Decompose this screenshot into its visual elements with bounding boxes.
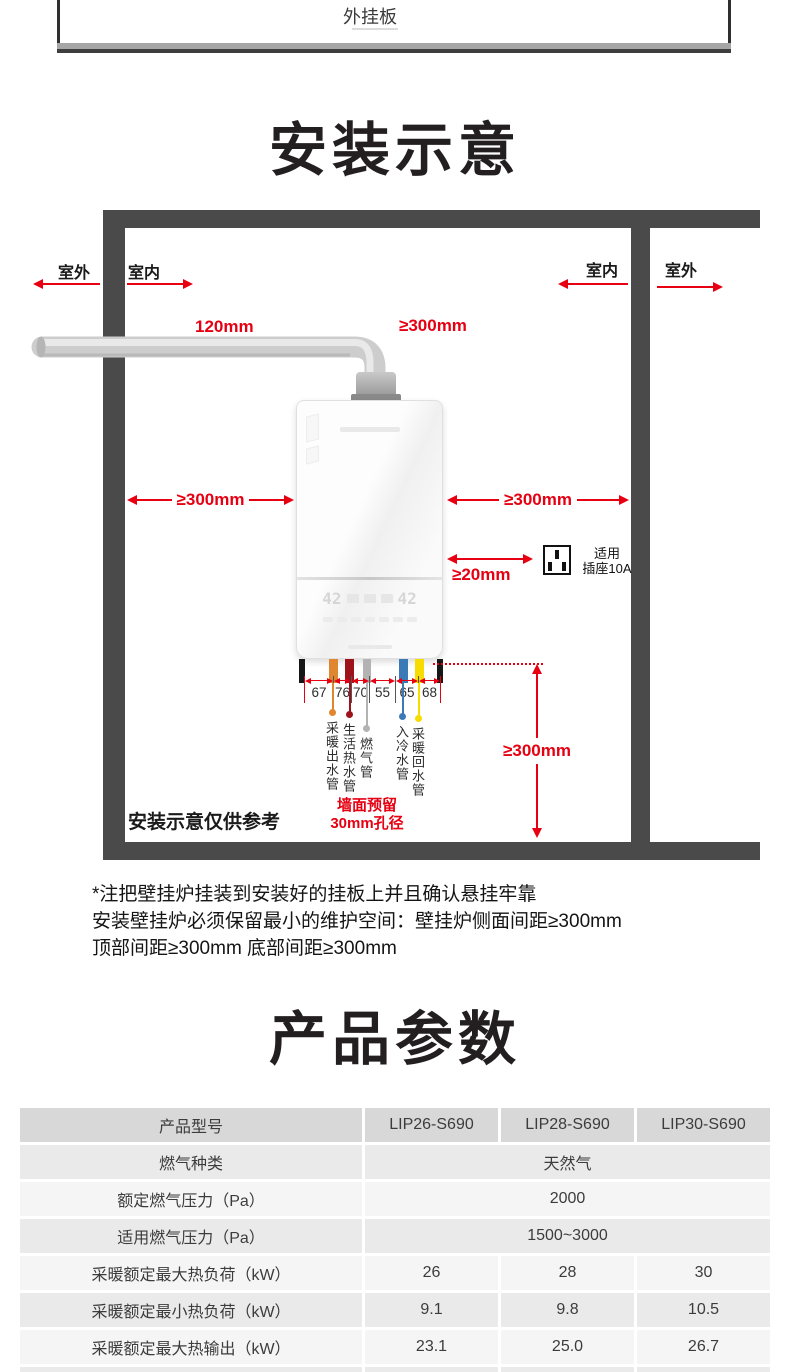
dim-left-clearance: ≥300mm	[172, 490, 250, 510]
wall-hole-note: 墙面预留 30mm孔径	[321, 797, 413, 833]
table-cell: 天然气	[365, 1145, 770, 1179]
dim-right-clearance-arrow: ≥300mm	[447, 494, 629, 506]
table-header-cell: LIP30-S690	[637, 1108, 770, 1142]
table-row-label: 采暖额定最大热负荷（kW）	[20, 1256, 362, 1290]
boiler-display-segment	[381, 594, 393, 603]
pipe-name-heating-out: 采暖出水管	[324, 721, 338, 791]
table-cell: 2000	[365, 1182, 770, 1216]
boiler-bottom-logo	[348, 645, 392, 649]
table-cutoff-row	[365, 1367, 498, 1372]
table-cell: 9.1	[365, 1293, 498, 1327]
power-socket-icon	[543, 545, 571, 575]
install-section-title: 安装示意	[0, 103, 790, 187]
table-row-label: 采暖额定最小热负荷（kW）	[20, 1293, 362, 1327]
params-table: 产品型号 LIP26-S690 LIP28-S690 LIP30-S690 燃气…	[20, 1108, 770, 1372]
table-cell: 9.8	[501, 1293, 634, 1327]
table-header-cell: LIP26-S690	[365, 1108, 498, 1142]
table-cell: 26	[365, 1256, 498, 1290]
table-cell: 1500~3000	[365, 1219, 770, 1253]
wall-floor	[103, 842, 760, 860]
table-cell: 10.5	[637, 1293, 770, 1327]
boiler-display-segment	[347, 594, 359, 603]
socket-label: 适用 插座10A	[577, 546, 637, 576]
arrow-indoor-right	[558, 278, 628, 290]
flue-pipe	[28, 330, 388, 410]
wall-right	[631, 210, 650, 860]
table-row-label: 采暖额定最大热输出（kW）	[20, 1330, 362, 1364]
boiler-brand-logo	[340, 427, 400, 432]
table-cell: 30	[637, 1256, 770, 1290]
boiler-display-segment	[364, 594, 376, 603]
pipe-name-gas: 燃气管	[358, 737, 372, 779]
params-section-title: 产品参数	[0, 992, 790, 1076]
table-cell: 28	[501, 1256, 634, 1290]
mount-plate-label: 外挂板	[300, 3, 440, 29]
pipe-name-cold-in: 入冷水管	[394, 725, 408, 781]
arrow-indoor-left	[127, 278, 193, 290]
table-row-label: 额定燃气压力（Pa）	[20, 1182, 362, 1216]
install-note-line: 顶部间距≥300mm 底部间距≥300mm	[92, 935, 752, 962]
extension-dotted-line	[433, 663, 543, 665]
dim-right-clearance: ≥300mm	[499, 490, 577, 510]
table-header-cell: 产品型号	[20, 1108, 362, 1142]
table-cell: 25.0	[501, 1330, 634, 1364]
dim-top-clearance: ≥300mm	[399, 316, 467, 336]
boiler-reflection	[306, 445, 319, 464]
dim-socket-clearance-arrow	[447, 553, 533, 565]
table-cutoff-row	[20, 1367, 362, 1372]
wall-left	[103, 210, 125, 860]
pipe-spacing-strip: 67 76 70 55 65 68	[304, 676, 441, 703]
product-detail-page: 外挂板 安装示意 室外 室内 室内 室外 120mm ≥300mm 42	[0, 0, 790, 1372]
table-row-label: 燃气种类	[20, 1145, 362, 1179]
boiler-unit: 42 42	[296, 400, 443, 659]
wall-ceiling	[103, 210, 760, 228]
arrow-outdoor-right	[657, 281, 723, 293]
mount-plate-edge-dark	[57, 49, 731, 53]
diagram-reference-note: 安装示意仅供参考	[128, 807, 280, 834]
label-outdoor-right: 室外	[665, 257, 697, 281]
dim-socket-clearance: ≥20mm	[452, 565, 510, 585]
boiler-display-right-value: 42	[398, 589, 417, 608]
table-cell: 23.1	[365, 1330, 498, 1364]
boiler-buttons-row	[297, 617, 442, 622]
install-notes: *注把壁挂炉挂装到安装好的挂板上并且确认悬挂牢靠 安装壁挂炉必须保留最小的维护空…	[92, 881, 752, 962]
pipe-name-heating-return: 采暖回水管	[410, 727, 424, 797]
install-note-line: *注把壁挂炉挂装到安装好的挂板上并且确认悬挂牢靠	[92, 881, 752, 908]
boiler-display-left-value: 42	[322, 589, 341, 608]
boiler-display: 42 42	[297, 589, 442, 608]
dim-bottom-clearance: ≥300mm	[501, 738, 573, 764]
dim-bottom-clearance-arrow: ≥300mm	[530, 664, 544, 838]
install-note-line: 安装壁挂炉必须保留最小的维护空间：壁挂炉侧面间距≥300mm	[92, 908, 752, 935]
pipe-name-hot-water: 生活热水管	[341, 723, 355, 793]
mount-plate-pointer-line	[352, 28, 398, 30]
table-cutoff-row	[637, 1367, 770, 1372]
table-header-cell: LIP28-S690	[501, 1108, 634, 1142]
boiler-panel-divider	[297, 577, 442, 580]
boiler-reflection	[306, 413, 319, 442]
dim-left-clearance-arrow: ≥300mm	[127, 494, 294, 506]
table-row-label: 适用燃气压力（Pa）	[20, 1219, 362, 1253]
table-cutoff-row	[501, 1367, 634, 1372]
arrow-outdoor-left	[33, 278, 100, 290]
table-cell: 26.7	[637, 1330, 770, 1364]
